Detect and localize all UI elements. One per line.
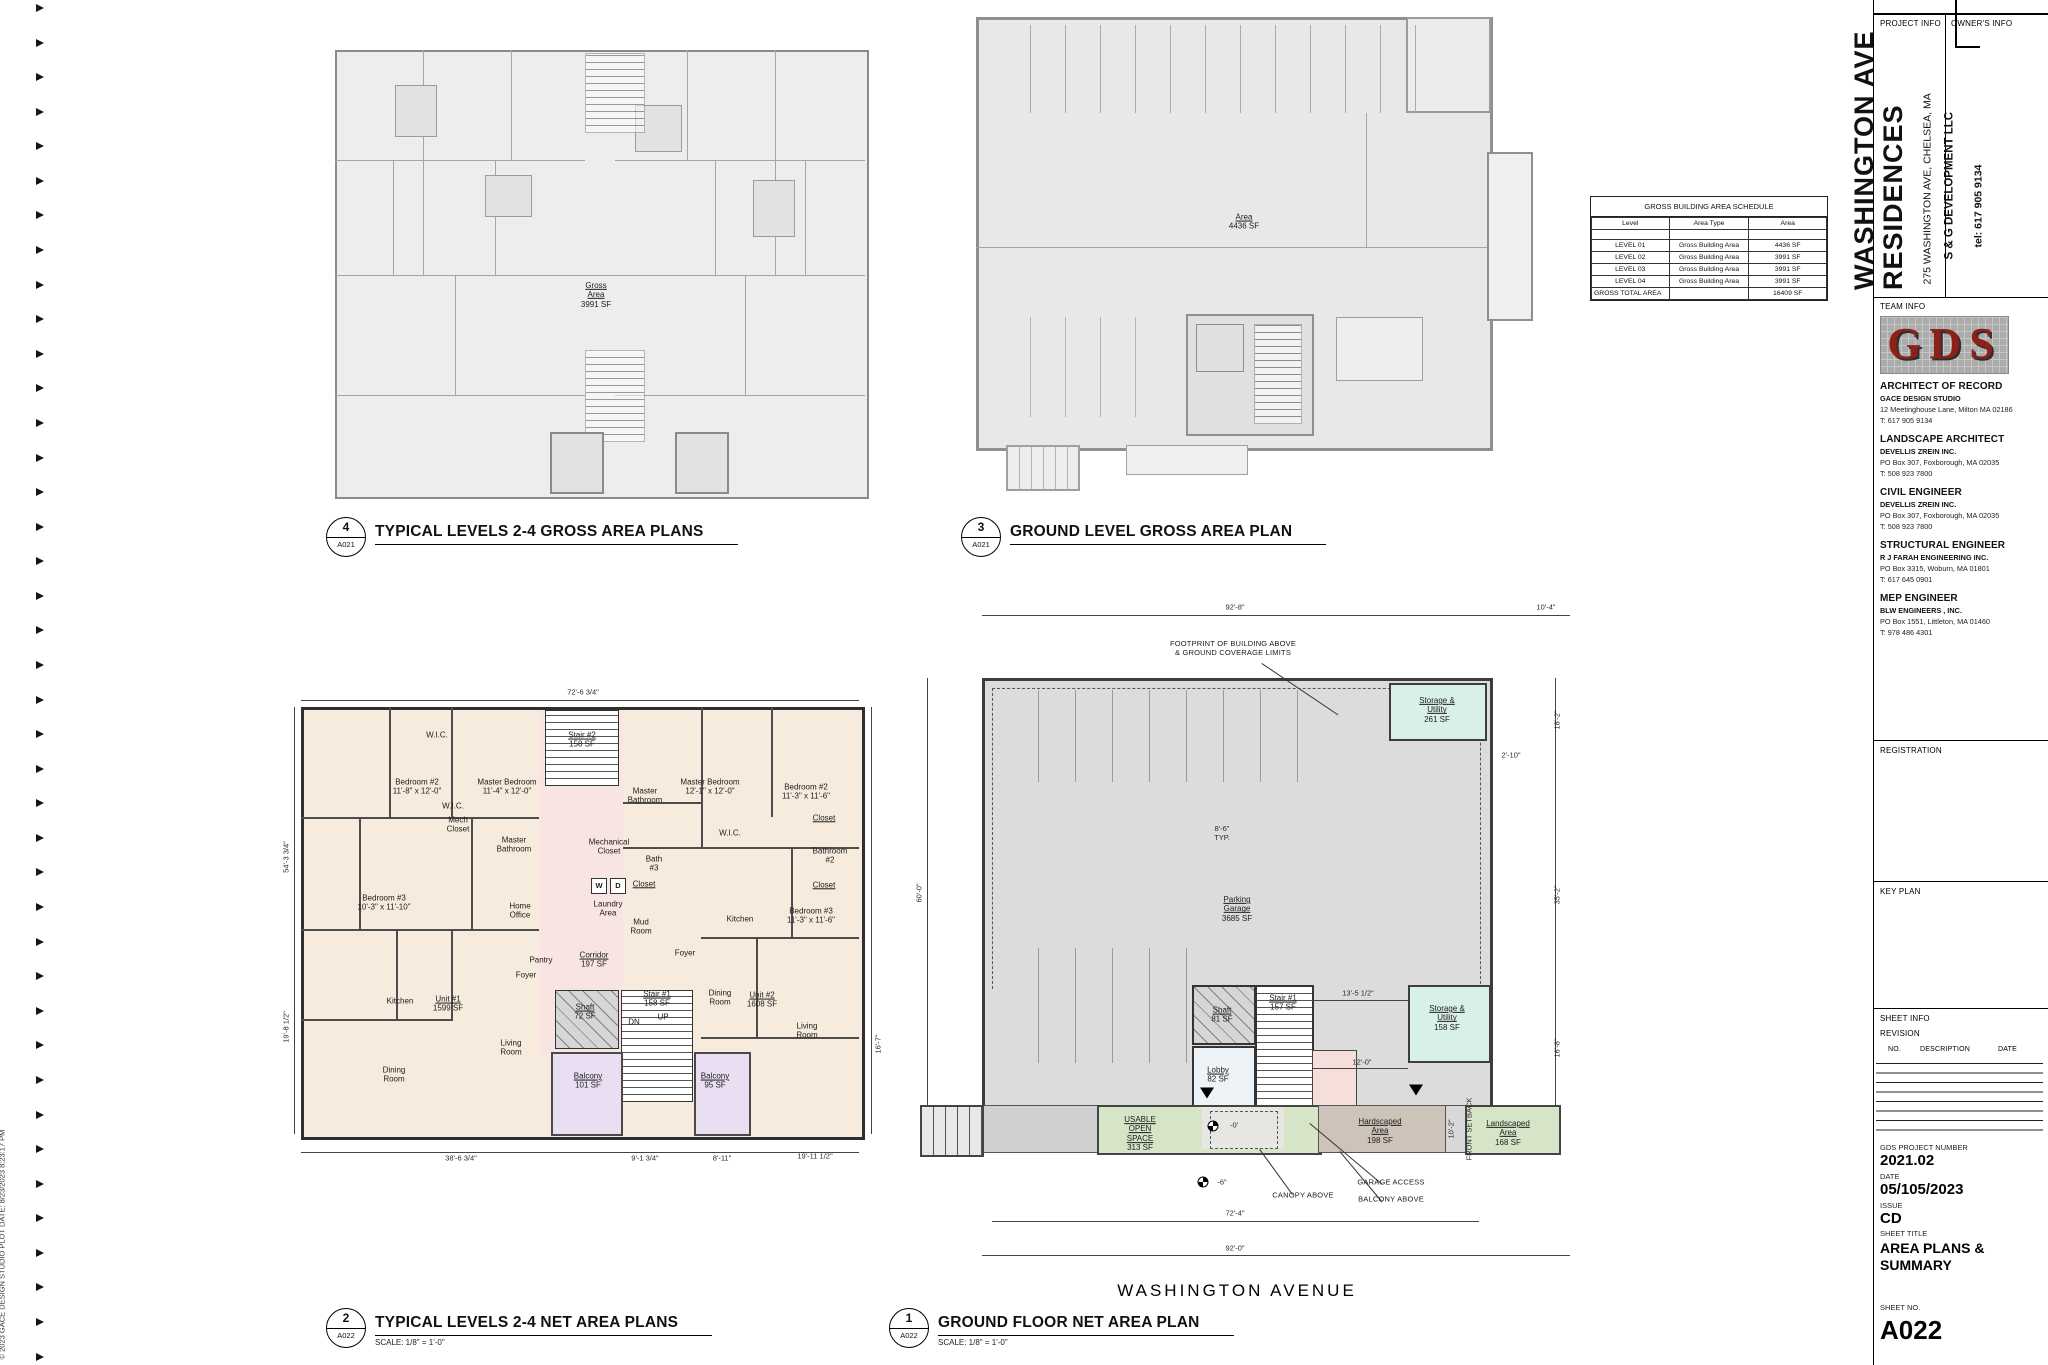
plan-annotation: CANOPY ABOVE xyxy=(1272,1192,1333,1201)
plan-annotation: W.I.C. xyxy=(719,828,741,837)
sheet-title-label: SHEET TITLE xyxy=(1880,1229,1927,1238)
plan-annotation: W.I.C. xyxy=(442,801,464,810)
revision-rows xyxy=(1876,1063,2043,1139)
plan-annotation: 18'-2" xyxy=(1554,710,1563,729)
detail-bubble: 3 A021 xyxy=(961,517,1001,557)
team-entry: CIVIL ENGINEER DEVELLIS ZREIN INC. PO Bo… xyxy=(1880,487,2042,531)
plan-annotation: Unit #11599 SF xyxy=(433,995,463,1014)
exterior-steps xyxy=(920,1105,984,1157)
team-entry: MEP ENGINEER BLW ENGINEERS , INC. PO Box… xyxy=(1880,593,2042,637)
viewport-title-text: TYPICAL LEVELS 2-4 NET AREA PLANS xyxy=(375,1314,712,1336)
project-name-line2: RESIDENCES xyxy=(1880,104,1907,290)
plan-annotation: MechCloset xyxy=(447,816,470,835)
schedule-row: LEVEL 03Gross Building Area3991 SF xyxy=(1592,264,1827,276)
detail-bubble: 4 A021 xyxy=(326,517,366,557)
plan-annotation: Kitchen xyxy=(727,914,754,923)
registration-label: REGISTRATION xyxy=(1880,746,1942,755)
plan-typical-gross: GrossArea3991 SF xyxy=(335,50,865,515)
plan-annotation: 16'-8" xyxy=(1554,1038,1563,1057)
plan-ground-gross: Area4436 SF xyxy=(976,17,1536,517)
plan-annotation: Storage &Utility261 SF xyxy=(1419,696,1455,724)
sheet-title-line2: SUMMARY xyxy=(1880,1257,1952,1273)
detail-bubble: 2 A022 xyxy=(326,1308,366,1348)
revision-col-no: NO. xyxy=(1888,1046,1901,1053)
issue-label: ISSUE xyxy=(1880,1201,1903,1210)
plan-annotation: Stair #1157 SF xyxy=(1269,994,1297,1013)
plan-annotation: 60'-0" xyxy=(916,883,925,902)
plan-annotation: HardscapedArea198 SF xyxy=(1358,1117,1401,1145)
plan-annotation: FOOTPRINT OF BUILDING ABOVE& GROUND COVE… xyxy=(1170,640,1296,658)
plan-annotation: GrossArea3991 SF xyxy=(581,281,611,309)
plan-annotation: Shaft72 SF xyxy=(574,1003,595,1022)
plan-annotation: 10'-2" xyxy=(1448,1119,1457,1138)
plan-annotation: 92'-8" xyxy=(1225,604,1244,613)
date-label: DATE xyxy=(1880,1172,1899,1181)
plan-annotation: MudRoom xyxy=(630,918,651,937)
plan-annotation: LandscapedArea168 SF xyxy=(1486,1119,1530,1147)
plan-annotation: DiningRoom xyxy=(709,989,732,1008)
plan-annotation: 10'-4" xyxy=(1536,604,1555,613)
plan-annotation: BALCONY ABOVE xyxy=(1358,1196,1424,1205)
plan-annotation: Bedroom #211'-3" x 11'-6" xyxy=(782,783,830,802)
canopy-above-dashed xyxy=(1210,1111,1278,1149)
plan-annotation: MasterBathroom xyxy=(497,836,532,855)
plan-annotation: 12'-0" xyxy=(1352,1059,1371,1068)
gds-logo: GDS xyxy=(1880,316,2009,374)
team-entry: STRUCTURAL ENGINEER R J FARAH ENGINEERIN… xyxy=(1880,540,2042,584)
street-label: WASHINGTON AVENUE xyxy=(1117,1281,1357,1301)
plan-annotation: Balcony95 SF xyxy=(701,1072,729,1091)
plan-annotation: 8'-11" xyxy=(713,1155,732,1164)
detail-bubble: 1 A022 xyxy=(889,1308,929,1348)
plan-annotation: Master Bedroom11'-4" x 12'-0" xyxy=(477,778,536,797)
plan-annotation: LivingRoom xyxy=(796,1022,817,1041)
revision-label: REVISION xyxy=(1880,1029,1920,1038)
plan-annotation: GARAGE ACCESS xyxy=(1357,1179,1424,1188)
plan-annotation: Foyer xyxy=(516,970,536,979)
plan-annotation: Bedroom #311'-3" x 11'-6" xyxy=(787,907,835,926)
viewport-title-3: 3 A021 GROUND LEVEL GROSS AREA PLAN xyxy=(961,517,1326,557)
plan-annotation: Area4436 SF xyxy=(1229,213,1259,232)
plan-annotation: HomeOffice xyxy=(509,902,530,921)
key-plan-label: KEY PLAN xyxy=(1880,887,1921,896)
copyright-note: © 2023 GACE DESIGN STUDIO PLOT DATE: 8/2… xyxy=(0,1130,6,1360)
plan-annotation: Shaft81 SF xyxy=(1211,1006,1232,1025)
plan-typical-net: W.I.C.Stair #2158 SFBedroom #211'-8" x 1… xyxy=(301,707,865,1140)
revision-col-date: DATE xyxy=(1998,1046,2017,1053)
viewport-title-text: GROUND FLOOR NET AREA PLAN xyxy=(938,1314,1234,1336)
team-entry: ARCHITECT OF RECORD GACE DESIGN STUDIO 1… xyxy=(1880,381,2042,425)
plan-annotation: LaundryArea xyxy=(594,900,623,919)
viewport-title-2: 2 A022 TYPICAL LEVELS 2-4 NET AREA PLANS… xyxy=(326,1308,712,1348)
plan-annotation: Stair #1158 SF xyxy=(643,990,671,1009)
schedule-row: LEVEL 04Gross Building Area3991 SF xyxy=(1592,276,1827,288)
plan-annotation: Foyer xyxy=(675,948,695,957)
viewport-scale: SCALE: 1/8" = 1'-0" xyxy=(375,1338,712,1347)
sheet-title-line1: AREA PLANS & xyxy=(1880,1240,1985,1256)
schedule-col-areatype: Area Type xyxy=(1669,218,1749,230)
team-list: ARCHITECT OF RECORD GACE DESIGN STUDIO 1… xyxy=(1880,372,2042,637)
plan-annotation: Closet xyxy=(813,813,836,822)
plan-annotation: Bath#3 xyxy=(646,855,662,874)
plan-annotation: USABLEOPENSPACE313 SF xyxy=(1124,1115,1156,1153)
plan-annotation: Storage &Utility158 SF xyxy=(1429,1004,1465,1032)
plan-annotation: 54'-3 3/4" xyxy=(283,841,292,873)
plan-annotation: Balcony101 SF xyxy=(574,1072,602,1091)
plan-ground-net: ParkingGarage3685 SFStorage &Utility261 … xyxy=(910,563,1600,1263)
plan-annotation: FRONT SETBACK xyxy=(1466,1098,1475,1161)
plan-annotation: 72'-4" xyxy=(1225,1210,1244,1219)
plan-annotation: MasterBathroom xyxy=(628,787,663,806)
plan-annotation: MechanicalCloset xyxy=(589,838,629,857)
project-number-label: GDS PROJECT NUMBER xyxy=(1880,1143,1968,1152)
plan-annotation: 38'-6 3/4" xyxy=(445,1155,477,1164)
plan-annotation: Bathroom#2 xyxy=(813,847,848,866)
owner-info-label: OWNER'S INFO xyxy=(1951,19,2012,28)
plan-annotation: 19'-8 1/2" xyxy=(283,1011,292,1043)
sheet-no-label: SHEET NO. xyxy=(1880,1303,1920,1312)
team-entry: LANDSCAPE ARCHITECT DEVELLIS ZREIN INC. … xyxy=(1880,434,2042,478)
plan-annotation: 35'-2" xyxy=(1554,885,1563,904)
plan-annotation: 9'-1 3/4" xyxy=(631,1155,658,1164)
plan2-balcony-101 xyxy=(551,1052,623,1136)
plan4-balcony xyxy=(675,432,729,494)
project-address: 275 WASHINGTON AVE, CHELSEA, MA xyxy=(1923,93,1934,284)
plan-annotation: Kitchen xyxy=(387,996,414,1005)
viewport-title-1: 1 A022 GROUND FLOOR NET AREA PLAN SCALE:… xyxy=(889,1308,1234,1348)
plan-annotation: 16'-7" xyxy=(875,1034,884,1053)
plan-annotation: DiningRoom xyxy=(383,1066,406,1085)
schedule-row: LEVEL 01Gross Building Area4436 SF xyxy=(1592,240,1827,252)
plan4-balcony xyxy=(550,432,604,494)
plan2-balcony-95 xyxy=(694,1052,751,1136)
issue-value: CD xyxy=(1880,1210,1902,1227)
plan-annotation: DN xyxy=(628,1017,640,1026)
plan-annotation: Stair #2158 SF xyxy=(568,731,596,750)
gross-building-area-schedule: GROSS BUILDING AREA SCHEDULE Level Area … xyxy=(1590,196,1828,301)
plan-annotation: UP xyxy=(657,1012,668,1021)
viewport-title-4: 4 A021 TYPICAL LEVELS 2-4 GROSS AREA PLA… xyxy=(326,517,738,557)
owner-tel: tel: 617 905 9134 xyxy=(1974,165,1985,248)
project-number: 2021.02 xyxy=(1880,1152,1934,1169)
plan-annotation: W xyxy=(591,878,607,894)
plan-annotation: Bedroom #310'-3" x 11'-10" xyxy=(357,894,410,913)
drawing-sheet: { "edge": { "copyright": "© 2023 GACE DE… xyxy=(0,0,2048,1365)
plan-annotation: Bedroom #211'-8" x 12'-0" xyxy=(393,778,442,797)
owner-name: S & G DEVELOPMENT LLC xyxy=(1945,112,1957,260)
plan-annotation: Unit #21608 SF xyxy=(747,991,777,1010)
plan-annotation: W.I.C. xyxy=(426,730,448,739)
plan-annotation: 13'-5 1/2" xyxy=(1342,990,1374,999)
plan-annotation: LivingRoom xyxy=(500,1039,521,1058)
plan-annotation: 8'-6"TYP. xyxy=(1214,825,1230,843)
schedule-row: LEVEL 02Gross Building Area3991 SF xyxy=(1592,252,1827,264)
plan-annotation: D xyxy=(610,878,626,894)
plan-annotation: -0' xyxy=(1230,1122,1238,1131)
date-value: 05/105/2023 xyxy=(1880,1181,1963,1198)
plan-annotation: Pantry xyxy=(529,955,552,964)
schedule-total-row: GROSS TOTAL AREA16409 SF xyxy=(1592,288,1827,300)
plan-annotation: 72'-6 3/4" xyxy=(567,689,599,698)
plan-annotation: ParkingGarage3685 SF xyxy=(1222,895,1252,923)
plan-annotation: Closet xyxy=(633,879,656,888)
viewport-scale: SCALE: 1/8" = 1'-0" xyxy=(938,1338,1234,1347)
plan-annotation: 92'-0" xyxy=(1225,1245,1244,1254)
schedule-col-area: Area xyxy=(1749,218,1827,230)
project-info-label: PROJECT INFO xyxy=(1880,19,1941,28)
plan-annotation: 19'-11 1/2" xyxy=(797,1153,832,1162)
revision-col-description: DESCRIPTION xyxy=(1920,1046,1970,1053)
viewport-title-text: GROUND LEVEL GROSS AREA PLAN xyxy=(1010,523,1326,545)
plan-annotation: Lobby82 SF xyxy=(1207,1066,1229,1085)
plan-annotation: -6" xyxy=(1217,1179,1226,1188)
edge-binding-marks xyxy=(36,4,48,1361)
viewport-title-text: TYPICAL LEVELS 2-4 GROSS AREA PLANS xyxy=(375,523,738,545)
schedule-col-level: Level xyxy=(1592,218,1670,230)
plan-annotation: Closet xyxy=(813,880,836,889)
sheet-number: A022 xyxy=(1880,1315,1942,1346)
team-info-label: TEAM INFO xyxy=(1880,302,1925,311)
plan-annotation: 2'-10" xyxy=(1501,752,1520,761)
project-name-line1: WASHINGTON AVE xyxy=(1851,30,1878,290)
plan-annotation: Corridor197 SF xyxy=(580,951,609,970)
sheet-info-label: SHEET INFO xyxy=(1880,1014,1930,1023)
plan-annotation: Master Bedroom12'-1" x 12'-0" xyxy=(680,778,739,797)
schedule-title: GROSS BUILDING AREA SCHEDULE xyxy=(1591,197,1827,217)
